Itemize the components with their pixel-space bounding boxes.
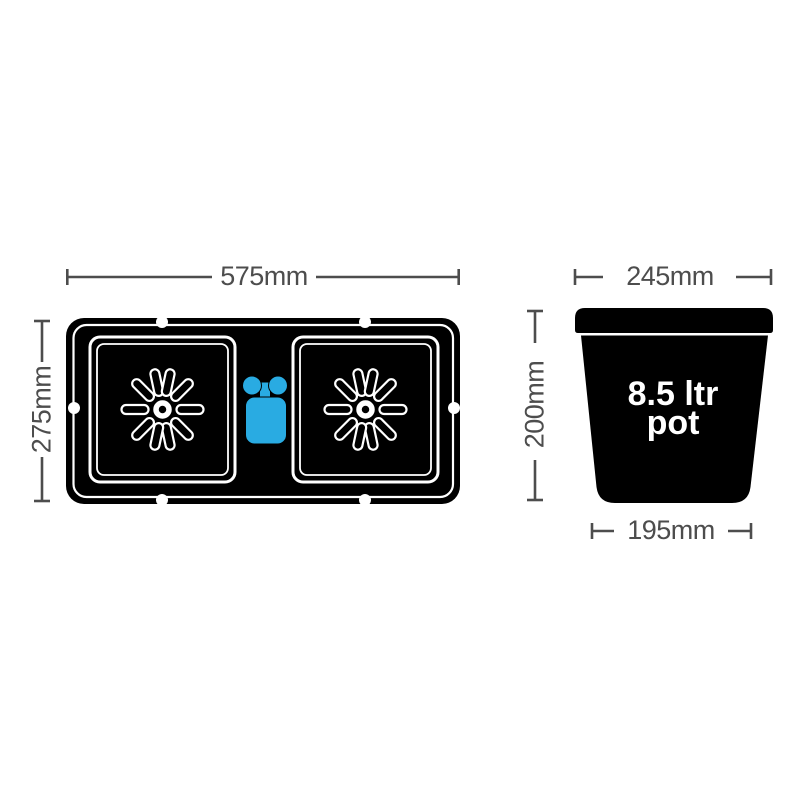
fitting-hole-dot [68,402,80,414]
pot-base-width-label: 195mm [611,515,731,546]
pot-rim [575,308,773,333]
fitting-hole-dot [156,494,168,506]
pot-top-width-label: 245mm [610,261,730,292]
fitting-hole-dot [156,316,168,328]
fitting-hole-dot [359,316,371,328]
dimension-diagram: 575mm 275mm 245mm 200mm 195mm 8.5 ltr po… [0,0,800,800]
tray-top-view [66,316,460,506]
tray-width-label: 575mm [204,261,324,292]
fitting-hole-dot [448,402,460,414]
pot-capacity-label: 8.5 ltr pot [592,380,754,438]
fitting-hole-dot [359,494,371,506]
tray-depth-label: 275mm [27,350,58,470]
pot-height-label: 200mm [520,345,551,465]
pot-capacity-line2: pot [592,409,754,438]
aqua-valve-icon [243,376,288,444]
